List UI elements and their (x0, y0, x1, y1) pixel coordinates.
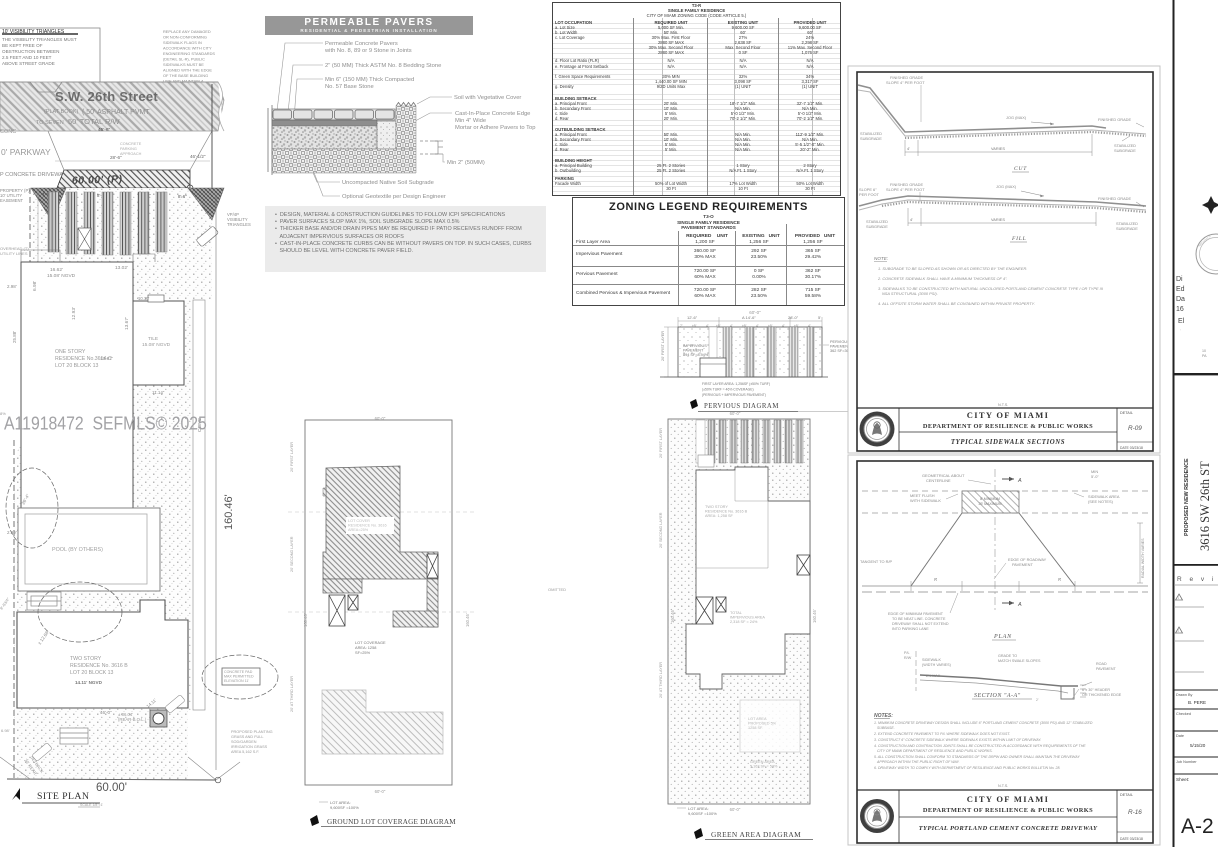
svg-text:894 SF=8.94%: 894 SF=8.94% (683, 353, 709, 357)
svg-text:Da: Da (1176, 296, 1185, 303)
svg-text:NOTES:: NOTES: (874, 713, 893, 719)
svg-text:DEPARTMENT OF RESILIENCE & PUB: DEPARTMENT OF RESILIENCE & PUBLIC WORKS (923, 423, 1093, 430)
svg-text:160.46': 160.46' (812, 609, 817, 623)
svg-text:46'-0": 46'-0" (100, 710, 112, 715)
svg-text:10' VISIBILITY TRIANGLES: 10' VISIBILITY TRIANGLES (2, 29, 65, 35)
svg-text:PAVEMENT: PAVEMENT (1012, 562, 1033, 567)
svg-text:ARCHITECT: ARCHITECT (1197, 234, 1212, 248)
svg-text:Job Number: Job Number (1176, 760, 1197, 764)
svg-text:TYPICAL PORTLAND CEMENT CONCRE: TYPICAL PORTLAND CEMENT CONCRETE DRIVEWA… (919, 825, 1098, 832)
svg-text:15.08' NGVD: 15.08' NGVD (142, 342, 171, 348)
svg-text:DATE 03/23/18: DATE 03/23/18 (1120, 837, 1143, 841)
svg-text:DRIVEWAY SHALL NOT EXTEND: DRIVEWAY SHALL NOT EXTEND (892, 622, 949, 626)
svg-text:AREA 5,162 S.F.: AREA 5,162 S.F. (231, 750, 259, 754)
svg-text:DEPARTMENT OF RESILIENCE & PUB: DEPARTMENT OF RESILIENCE & PUBLIC WORKS (923, 807, 1093, 814)
svg-text:1258 SF: 1258 SF (748, 726, 763, 730)
svg-text:160.46': 160.46' (465, 613, 470, 627)
svg-text:8'-83/4": 8'-83/4" (0, 596, 11, 610)
svg-text:FIRST LAYER AREA: 1,256SF (±5: FIRST LAYER AREA: 1,256SF (±50% TURF) (702, 382, 770, 386)
svg-text:ABOVE STREET GRADE: ABOVE STREET GRADE (2, 61, 55, 66)
svg-text:2" (50 MM) Thick ASTM No. 8 Be: 2" (50 MM) Thick ASTM No. 8 Bedding Ston… (325, 63, 441, 69)
svg-text:5'-0": 5'-0" (1091, 474, 1099, 479)
svg-text:60'-0": 60'-0" (375, 789, 386, 794)
svg-text:GRADE TO: GRADE TO (998, 654, 1017, 658)
svg-text:DETAIL: DETAIL (1120, 411, 1133, 415)
svg-text:1: 1 (1178, 596, 1180, 600)
svg-text:ONE STORY: ONE STORY (55, 349, 86, 355)
svg-text:2. CONCRETE SIDEWALK SHALL HAV: 2. CONCRETE SIDEWALK SHALL HAVE A MINIMU… (877, 276, 1008, 281)
svg-text:B. PERE: B. PERE (1188, 700, 1206, 705)
svg-text:El: El (1178, 318, 1185, 325)
svg-text:160.46': 160.46' (303, 613, 308, 627)
svg-text:SUBGRADE: SUBGRADE (1114, 148, 1136, 153)
svg-text:4. CONSTRUCTION AND CONTRACTIO: 4. CONSTRUCTION AND CONTRACTION JOINTS S… (874, 744, 1086, 748)
svg-text:MATCH SWALE SLOPES: MATCH SWALE SLOPES (998, 659, 1041, 663)
svg-text:SUBGRADE: SUBGRADE (1116, 226, 1138, 231)
svg-text:TWO STORY: TWO STORY (70, 656, 102, 662)
svg-text:TWO STORY: TWO STORY (705, 505, 728, 509)
svg-text:20' SECOND LAYER: 20' SECOND LAYER (659, 512, 663, 548)
svg-text:CONC: CONC (0, 129, 16, 135)
svg-text:SOD/GARDEN: SOD/GARDEN (231, 740, 257, 744)
svg-text:Checked: Checked (1176, 712, 1191, 716)
svg-text:28'-0": 28'-0" (788, 315, 799, 320)
svg-text:SLOPE 4" PER FOOT: SLOPE 4" PER FOOT (886, 80, 925, 85)
svg-text:CITY OF MIAMI: CITY OF MIAMI (967, 794, 1049, 804)
svg-text:SUBGRADE: SUBGRADE (866, 224, 888, 229)
svg-text:SIDEWALKS MUST BE: SIDEWALKS MUST BE (163, 62, 204, 67)
svg-text:FILL: FILL (1011, 236, 1027, 242)
svg-text:FINISHED GRADE: FINISHED GRADE (1098, 117, 1131, 122)
svg-text:20' AT THIRD LAYER: 20' AT THIRD LAYER (659, 662, 663, 698)
svg-text:PAVEMENT: PAVEMENT (1096, 667, 1116, 671)
svg-text:10: 10 (1202, 349, 1206, 353)
svg-text:IRRIGATION GRASS: IRRIGATION GRASS (231, 745, 268, 749)
svg-text:R-09: R-09 (1128, 425, 1142, 432)
svg-text:(PLAT BOOK): (PLAT BOOK) (44, 109, 79, 115)
svg-text:SUBBASE.: SUBBASE. (877, 726, 895, 730)
svg-text:8' MINIMUM: 8' MINIMUM (980, 497, 1000, 501)
svg-text:TOTAL: TOTAL (730, 611, 742, 615)
svg-text:Drawn By: Drawn By (1176, 693, 1193, 697)
svg-text:2: 2 (1178, 629, 1180, 633)
svg-text:160.46': 160.46' (670, 609, 675, 623)
svg-text:IMPERVIOUS: IMPERVIOUS (683, 344, 707, 348)
svg-text:13.02': 13.02' (115, 265, 128, 271)
svg-text:OBSTRUCTION BETWEEN: OBSTRUCTION BETWEEN (2, 49, 59, 54)
svg-text:5,162 SF = 53%: 5,162 SF = 53% (750, 765, 778, 769)
svg-text:(REAR B.O.L.): (REAR B.O.L.) (118, 717, 147, 722)
svg-text:ACCORDANCE WITH CITY: ACCORDANCE WITH CITY (163, 46, 212, 51)
svg-text:OR NON-CONFORMING: OR NON-CONFORMING (163, 35, 207, 40)
svg-text:THE VISIBILITY TRIANGLES MUST: THE VISIBILITY TRIANGLES MUST (2, 37, 77, 42)
svg-text:10.10': 10.10' (138, 296, 149, 301)
svg-text:JOG (MAX): JOG (MAX) (1006, 115, 1027, 120)
svg-text:S.W. 26th Street: S.W. 26th Street (55, 89, 158, 104)
svg-text:ALIGNED WITH THE EDGE: ALIGNED WITH THE EDGE (163, 68, 212, 73)
svg-text:LOT 20 BLOCK 13: LOT 20 BLOCK 13 (55, 363, 99, 369)
svg-text:16.62': 16.62' (50, 267, 63, 273)
svg-text:CITY OF MIAMI DEPARTMENT OF RE: CITY OF MIAMI DEPARTMENT OF RESILIENCE A… (877, 749, 993, 753)
svg-text:LOT 20 BLOCK 13: LOT 20 BLOCK 13 (70, 670, 114, 676)
svg-text:11.14': 11.14' (152, 390, 164, 395)
svg-text:60.00': 60.00' (96, 782, 127, 794)
svg-text:SUBGRADE: SUBGRADE (860, 136, 882, 141)
svg-text:RESIDENCE No. 3616: RESIDENCE No. 3616 (348, 524, 387, 528)
svg-text:60'-0": 60'-0" (730, 807, 741, 812)
svg-text:DETAIL: DETAIL (1120, 793, 1133, 797)
svg-text:8'-6": 8'-6" (178, 194, 187, 199)
svg-text:14.11' NGVD: 14.11' NGVD (75, 680, 103, 685)
svg-text:CONCRETE PAD: CONCRETE PAD (224, 670, 253, 674)
svg-text:DATE 03/23/18: DATE 03/23/18 (1120, 446, 1143, 450)
svg-text:SIDEWALK FLAGS IN: SIDEWALK FLAGS IN (163, 40, 202, 45)
svg-text:Cast-In-Place Concrete Edge: Cast-In-Place Concrete Edge (455, 111, 530, 117)
svg-text:EDGE OF MINIMUM PAVEMENT: EDGE OF MINIMUM PAVEMENT (888, 612, 944, 616)
svg-text:5/15/20: 5/15/20 (1190, 743, 1206, 748)
svg-text:6.98': 6.98' (1, 728, 10, 733)
svg-text:': ' (1180, 329, 1181, 333)
svg-text:28'-6": 28'-6" (110, 155, 122, 160)
svg-text:with No. 8, 89 or 9 Stone in J: with No. 8, 89 or 9 Stone in Joints (324, 48, 412, 54)
svg-text:WITH SIDEWALK: WITH SIDEWALK (910, 498, 941, 503)
svg-text:20' FIRST LAYER: 20' FIRST LAYER (290, 442, 294, 472)
svg-text:RADIAL WIDTH VARIES: RADIAL WIDTH VARIES (1141, 538, 1145, 578)
svg-text:VARIES: VARIES (991, 146, 1005, 151)
svg-text:POOL (BY OTHERS): POOL (BY OTHERS) (52, 547, 103, 553)
svg-text:2. EXTEND CONCRETE PAVEMENT TO: 2. EXTEND CONCRETE PAVEMENT TO P/L WHERE… (873, 732, 1010, 736)
svg-text:TANGENT TO R/P: TANGENT TO R/P (860, 559, 893, 564)
svg-text:RESIDENCE No. 3616 B: RESIDENCE No. 3616 B (70, 663, 128, 669)
svg-text:PROPOSED 5%: PROPOSED 5% (748, 722, 777, 726)
svg-text:PER FOOT: PER FOOT (859, 192, 880, 197)
svg-text:RESIDENCE No.3614-C: RESIDENCE No.3614-C (55, 356, 112, 362)
svg-text:CUT: CUT (1014, 166, 1027, 172)
svg-text:20' AT THIRD LAYER: 20' AT THIRD LAYER (290, 676, 294, 712)
svg-text:Min 2" (50MM): Min 2" (50MM) (447, 160, 485, 166)
svg-text:APPROACH: APPROACH (120, 152, 142, 156)
svg-text:R e v i s: R e v i s (1177, 576, 1218, 583)
svg-text:PARKING: PARKING (120, 147, 137, 151)
svg-text:6"x 30" HEADER: 6"x 30" HEADER (1082, 688, 1110, 692)
svg-text:1. MINIMUM CONCRETE DRIVEWAY D: 1. MINIMUM CONCRETE DRIVEWAY DESIGN SHAL… (874, 721, 1093, 725)
svg-text:OR THICKENED EDGE: OR THICKENED EDGE (1082, 693, 1122, 697)
svg-text:R/W: R/W (904, 656, 912, 660)
svg-text:CITY OF MIAMI: CITY OF MIAMI (967, 410, 1049, 420)
svg-text:25' MAXIMUM: 25' MAXIMUM (978, 502, 1001, 506)
svg-text:Soil with Vegetative Cover: Soil with Vegetative Cover (454, 95, 521, 101)
svg-text:4': 4' (910, 217, 913, 222)
svg-text:GREEN AREA: GREEN AREA (750, 760, 775, 764)
svg-text:6. DRIVEWAY WIDTH TO COMPLY WI: 6. DRIVEWAY WIDTH TO COMPLY WITH DEPARTM… (874, 766, 1060, 770)
svg-text:CONCRETE: CONCRETE (120, 142, 142, 146)
svg-text:9,600SF =100%: 9,600SF =100% (688, 811, 717, 816)
svg-text:A: A (1017, 478, 1022, 484)
svg-text:3616 SW 26th ST: 3616 SW 26th ST (1198, 461, 1212, 551)
svg-text:160.46': 160.46' (223, 494, 235, 530)
svg-text:ENGINEERING STANDARDS: ENGINEERING STANDARDS (163, 51, 215, 56)
svg-text:Di: Di (1176, 276, 1183, 283)
svg-text:JOG (MAX): JOG (MAX) (996, 184, 1017, 189)
svg-text:Uncompacted Native Soil Subgra: Uncompacted Native Soil Subgrade (342, 180, 434, 186)
svg-text:BE KEPT FREE OF: BE KEPT FREE OF (2, 43, 43, 48)
svg-text:OF THE BASE BUILDING: OF THE BASE BUILDING (163, 73, 208, 78)
svg-text:No. 57 Base Stone: No. 57 Base Stone (325, 84, 374, 90)
svg-text:Min 6" (150 MM) Thick Compacte: Min 6" (150 MM) Thick Compacted (325, 77, 414, 83)
svg-text:(DETAIL SL-R), PUBLIC: (DETAIL SL-R), PUBLIC (163, 57, 205, 62)
svg-text:13.67': 13.67' (124, 317, 130, 330)
svg-text:2.98': 2.98' (7, 284, 17, 289)
svg-text:(WIDTH VARIES): (WIDTH VARIES) (922, 663, 951, 667)
svg-text:GRASS AND FULL: GRASS AND FULL (231, 735, 264, 739)
svg-text:UTILITY LINES: UTILITY LINES (0, 251, 28, 256)
svg-text:(SEE NOTES): (SEE NOTES) (1088, 499, 1114, 504)
svg-text:R: R (934, 577, 937, 582)
svg-text:(±50% TURF = 46% COVERAGE): (±50% TURF = 46% COVERAGE) (702, 388, 754, 392)
svg-text:PLAN: PLAN (993, 634, 1012, 640)
svg-text:P CONCRETE DRIVEWAY: P CONCRETE DRIVEWAY (0, 172, 67, 178)
svg-text:EASEMENT: EASEMENT (0, 198, 23, 203)
svg-text:2,318 SF = 24%: 2,318 SF = 24% (730, 620, 758, 624)
svg-text:16: 16 (1176, 306, 1184, 313)
svg-text:N.T.S.: N.T.S. (998, 403, 1008, 407)
svg-text:INTO PARKING LANE: INTO PARKING LANE (892, 627, 929, 631)
svg-text:Ed: Ed (1176, 286, 1185, 293)
svg-text:A 14'-6": A 14'-6" (742, 315, 756, 320)
svg-text:SIDEWALK: SIDEWALK (922, 658, 941, 662)
svg-text:20' SECOND LAYER: 20' SECOND LAYER (290, 536, 294, 572)
svg-text:FINISHED GRADE: FINISHED GRADE (1098, 196, 1131, 201)
svg-text:2.99': 2.99' (7, 530, 17, 535)
svg-text:( 50' ASPHALT PVMT: ( 50' ASPHALT PVMT (82, 109, 150, 116)
svg-text:12.93': 12.93' (71, 307, 77, 320)
svg-text:LOT AREA: LOT AREA (748, 717, 767, 721)
svg-text:TO BE NEAT LINE. CONCRETE: TO BE NEAT LINE. CONCRETE (892, 617, 946, 621)
svg-text:APPROACH WITHIN THE PUBLIC RIG: APPROACH WITHIN THE PUBLIC RIGHT OF WAY. (876, 760, 960, 764)
svg-text:TYPICAL SIDEWALK SECTIONS: TYPICAL SIDEWALK SECTIONS (951, 439, 1065, 446)
svg-text:20' FIRST LAYER: 20' FIRST LAYER (661, 331, 665, 361)
svg-text:4': 4' (907, 146, 910, 151)
svg-text:SLOPE 4" PER FOOT: SLOPE 4" PER FOOT (886, 187, 925, 192)
svg-text:TO SEVEN: TO SEVEN (36, 120, 64, 126)
svg-text:TILE: TILE (148, 336, 158, 342)
svg-text:12'-6": 12'-6" (687, 315, 698, 320)
svg-text:PROPOSED NEW RESIDENCE: PROPOSED NEW RESIDENCE (1184, 458, 1190, 536)
svg-text:SITE PLAN: SITE PLAN (37, 791, 89, 802)
svg-text:4. ALL OFFSITE STORM WATER SHA: 4. ALL OFFSITE STORM WATER SHALL BE CONT… (878, 301, 1035, 306)
svg-text:GROUND LOT COVERAGE DIAGRAM: GROUND LOT COVERAGE DIAGRAM (327, 818, 456, 826)
svg-text:CENTERLINE: CENTERLINE (926, 478, 951, 483)
svg-text:5': 5' (818, 315, 821, 320)
svg-text:NSA STRUCTURAL (3000 PSI).: NSA STRUCTURAL (3000 PSI). (882, 291, 938, 296)
svg-text:SCALE 1/8"=1': SCALE 1/8"=1' (80, 803, 104, 807)
svg-text:Min 4" Wide: Min 4" Wide (455, 118, 486, 124)
svg-text:TRIANGLES: TRIANGLES (227, 222, 251, 227)
svg-text:PROPOSED PLANTING: PROPOSED PLANTING (231, 730, 273, 734)
svg-text:NOTE:: NOTE: (874, 256, 889, 261)
svg-text:2': 2' (1036, 698, 1039, 702)
svg-text:REPLACE ANY DAMAGED: REPLACE ANY DAMAGED (163, 29, 211, 34)
svg-text:60'-0": 60'-0" (730, 411, 741, 416)
svg-text:MAX PERMITTED: MAX PERMITTED (224, 675, 254, 679)
svg-text:Sheet:: Sheet: (1176, 777, 1189, 782)
svg-text:Optional Geotextile per Design: Optional Geotextile per Design Engineer (342, 194, 446, 200)
svg-text:5. ALL CONSTRUCTION SHALL CONF: 5. ALL CONSTRUCTION SHALL CONFORM TO STA… (874, 755, 1080, 759)
svg-text:PAVEMENT: PAVEMENT (683, 349, 704, 353)
svg-text:R: R (1058, 577, 1061, 582)
svg-text:6.98': 6.98' (32, 281, 38, 291)
svg-text:60.00' (P): 60.00' (P) (72, 173, 123, 187)
svg-text:AREA=25%: AREA=25% (348, 528, 369, 532)
svg-text:ROAD: ROAD (1096, 662, 1107, 666)
svg-text:AREA: 1,258 SF: AREA: 1,258 SF (705, 514, 734, 518)
svg-text:3. CONSTRUCT 6" CONCRETE SIDEW: 3. CONSTRUCT 6" CONCRETE SIDEWALK WHERE … (874, 738, 1041, 742)
svg-text:R-16: R-16 (1128, 809, 1142, 816)
svg-text:Permeable Concrete Pavers: Permeable Concrete Pavers (325, 41, 398, 47)
svg-text:25.88': 25.88' (12, 331, 17, 343)
svg-text:ELEVATION 11': ELEVATION 11' (224, 679, 249, 683)
svg-text:RESIDENCE No. 3616 B: RESIDENCE No. 3616 B (705, 510, 748, 514)
svg-text:0' PARKWAY: 0' PARKWAY (1, 147, 51, 157)
svg-text:1. SUBGRADE TO BE SLOPED AS SH: 1. SUBGRADE TO BE SLOPED AS SHOWN OR AS … (878, 266, 1027, 271)
svg-text:15.08' NGVD: 15.08' NGVD (47, 273, 76, 279)
svg-text:N.T.S.: N.T.S. (998, 784, 1008, 788)
svg-text:Mortar or Adhere Pavers to Top: Mortar or Adhere Pavers to Top (455, 125, 535, 131)
svg-text:IMPERVIOUS AREA: IMPERVIOUS AREA (730, 616, 765, 620)
svg-text:(PERVIOUS + IMPERVIOUS PAVEMEN: (PERVIOUS + IMPERVIOUS PAVEMENT) (702, 393, 766, 397)
svg-text:A: A (1017, 602, 1022, 608)
svg-text:50' TOTAL R/W: 50' TOTAL R/W (68, 117, 121, 126)
svg-text:Date: Date (1176, 734, 1184, 738)
svg-text:VARIES: VARIES (991, 217, 1005, 222)
svg-text:20' FIRST LAYER: 20' FIRST LAYER (659, 428, 663, 458)
svg-text:P/L: P/L (904, 651, 910, 655)
svg-text:SF=25%: SF=25% (355, 650, 371, 655)
svg-text:9,600SF =100%: 9,600SF =100% (330, 805, 359, 810)
svg-text:A-2: A-2 (1181, 815, 1214, 838)
svg-text:GREEN AREA DIAGRAM: GREEN AREA DIAGRAM (711, 830, 801, 839)
svg-text:45'-6": 45'-6" (98, 127, 111, 133)
svg-text:SECTION "A-A": SECTION "A-A" (974, 693, 1021, 699)
svg-text:PA: PA (1202, 354, 1207, 358)
svg-text:2.5 FEET AND 10 FEET: 2.5 FEET AND 10 FEET (2, 55, 52, 60)
svg-text:LOT COVER: LOT COVER (348, 519, 370, 523)
